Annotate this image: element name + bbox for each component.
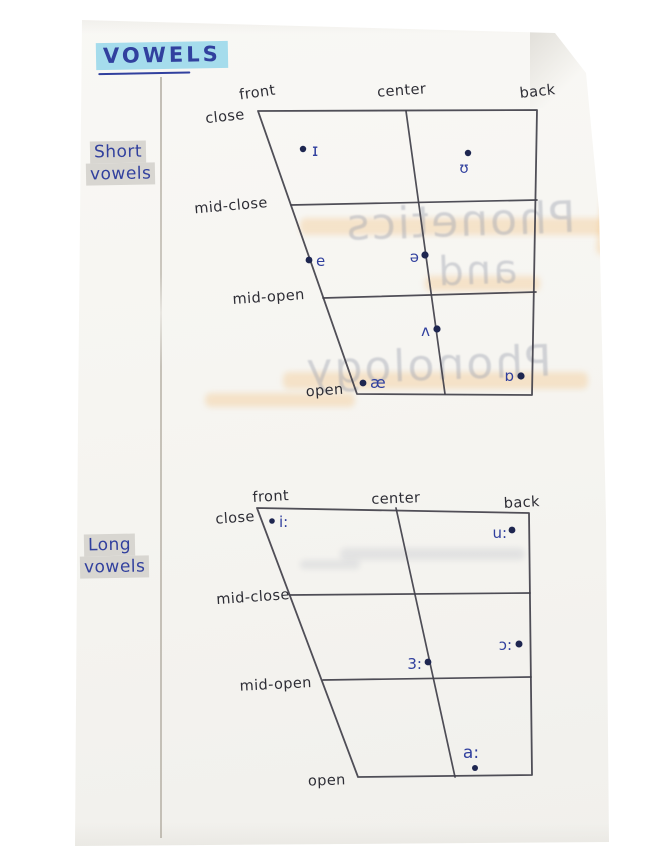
axis-label-mid-close: mid-close: [194, 195, 269, 217]
long-vowels-label-line1: Long: [84, 534, 136, 557]
row-line: [291, 200, 537, 205]
long-vowels-label-line2: vowels: [80, 555, 150, 578]
vowel-dot-ʊ: [465, 150, 471, 156]
row-line: [323, 677, 531, 680]
axis-label-mid-open: mid-open: [239, 675, 312, 695]
vowel-dot-e: [306, 257, 313, 264]
vowel-charts-svg: frontcenterbackclosemid-closemid-openope…: [0, 0, 655, 848]
vowel-symbol-3:: 3:: [407, 655, 422, 673]
axis-label-center: center: [371, 490, 421, 508]
row-line: [290, 593, 530, 595]
scanned-notebook-page: PhoneticsandPhonology VOWELS Short vowel…: [0, 0, 655, 848]
vowel-symbol-ʊ: ʊ: [459, 159, 468, 177]
axis-label-open: open: [305, 382, 344, 401]
center-line: [396, 508, 455, 777]
axis-label-mid-close: mid-close: [216, 587, 290, 608]
vowel-symbol-ɒ: ɒ: [504, 367, 514, 385]
vowel-dot-a:: [472, 765, 478, 771]
axis-label-front: front: [252, 488, 289, 506]
axis-label-center: center: [377, 81, 427, 100]
vowel-dot-ɒ: [517, 372, 524, 379]
axis-label-close: close: [215, 509, 255, 528]
vowel-dot-3:: [425, 659, 432, 666]
vowel-dot-i:: [269, 518, 275, 524]
vowel-dot-ə: [421, 251, 428, 258]
row-line: [323, 292, 536, 298]
vowel-dot-ɔ:: [516, 641, 523, 648]
chart-outline: [257, 508, 532, 777]
vowel-dot-ʌ: [433, 325, 440, 332]
axis-label-front: front: [238, 83, 276, 104]
vowel-symbol-ɪ: ɪ: [312, 141, 318, 161]
long-vowel-chart: frontcenterbackclosemid-closemid-openope…: [215, 488, 541, 790]
vowel-symbol-u:: u:: [492, 524, 507, 542]
vowel-dot-u:: [509, 527, 516, 534]
vowel-dot-ɪ: [300, 146, 306, 152]
paper-sheet: PhoneticsandPhonology VOWELS Short vowel…: [0, 0, 655, 848]
vowel-symbol-ɔ:: ɔ:: [499, 636, 512, 654]
long-vowels-section-label: Long vowels: [84, 534, 149, 578]
short-vowels-label-line1: Short: [90, 141, 147, 164]
axis-label-open: open: [308, 772, 346, 789]
axis-label-mid-open: mid-open: [232, 287, 305, 308]
short-vowels-label-line2: vowels: [86, 162, 156, 185]
page-title: VOWELS: [96, 41, 228, 70]
axis-label-back: back: [503, 494, 540, 512]
chart-outline: [258, 110, 537, 395]
vowel-symbol-e: e: [316, 252, 325, 270]
page-title-wrap: VOWELS: [96, 41, 228, 70]
vowel-symbol-i:: i:: [279, 513, 288, 531]
axis-label-close: close: [205, 107, 246, 127]
vowel-dot-æ: [360, 380, 367, 387]
short-vowel-chart: frontcenterbackclosemid-closemid-openope…: [194, 81, 557, 400]
vowel-symbol-æ: æ: [370, 373, 386, 392]
axis-label-back: back: [519, 82, 557, 102]
vowel-symbol-a:: a:: [463, 743, 479, 763]
vowel-symbol-ʌ: ʌ: [421, 322, 430, 340]
vowel-symbol-ə: ə: [410, 248, 419, 266]
short-vowels-section-label: Short vowels: [90, 141, 155, 185]
